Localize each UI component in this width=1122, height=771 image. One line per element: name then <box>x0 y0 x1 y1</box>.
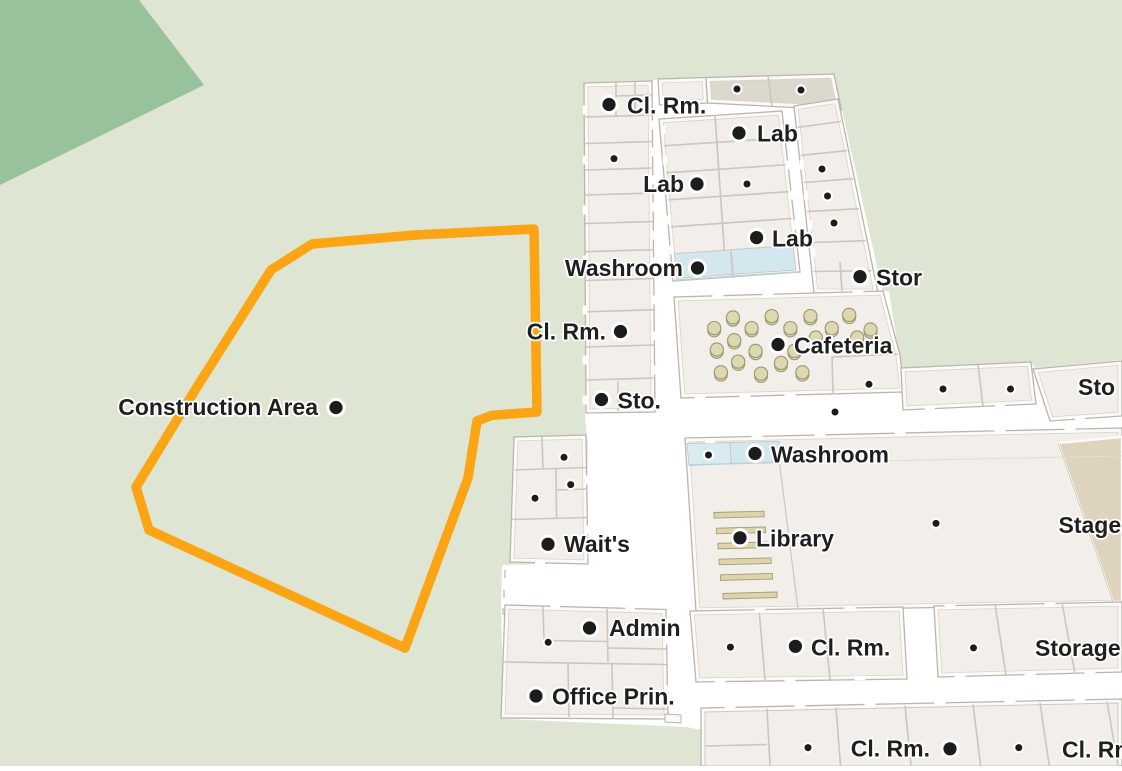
svg-text:Library: Library <box>756 525 834 551</box>
svg-text:Sto: Sto <box>1078 374 1115 400</box>
svg-text:Washroom: Washroom <box>771 442 889 468</box>
svg-text:Stage: Stage <box>1059 512 1122 538</box>
svg-text:Cl. Rm.: Cl. Rm. <box>811 634 890 660</box>
svg-text:Lab: Lab <box>772 226 813 252</box>
svg-text:Lab: Lab <box>643 171 684 197</box>
svg-text:Cl. Rm.: Cl. Rm. <box>527 319 606 345</box>
svg-text:Wait's: Wait's <box>564 531 630 557</box>
svg-text:Construction Area: Construction Area <box>118 394 318 420</box>
svg-text:Storage: Storage <box>1035 635 1121 661</box>
svg-text:Cl. Rm: Cl. Rm <box>1062 737 1122 763</box>
svg-text:Cl. Rm.: Cl. Rm. <box>851 736 930 762</box>
svg-text:Stor: Stor <box>876 265 922 291</box>
svg-text:Cl. Rm.: Cl. Rm. <box>627 93 706 119</box>
svg-text:Admin: Admin <box>609 615 681 641</box>
svg-text:Lab: Lab <box>757 121 798 147</box>
svg-text:Office Prin.: Office Prin. <box>552 684 675 710</box>
svg-text:Cafeteria: Cafeteria <box>794 333 893 359</box>
svg-text:Washroom: Washroom <box>565 255 683 281</box>
svg-text:Sto.: Sto. <box>618 388 661 414</box>
